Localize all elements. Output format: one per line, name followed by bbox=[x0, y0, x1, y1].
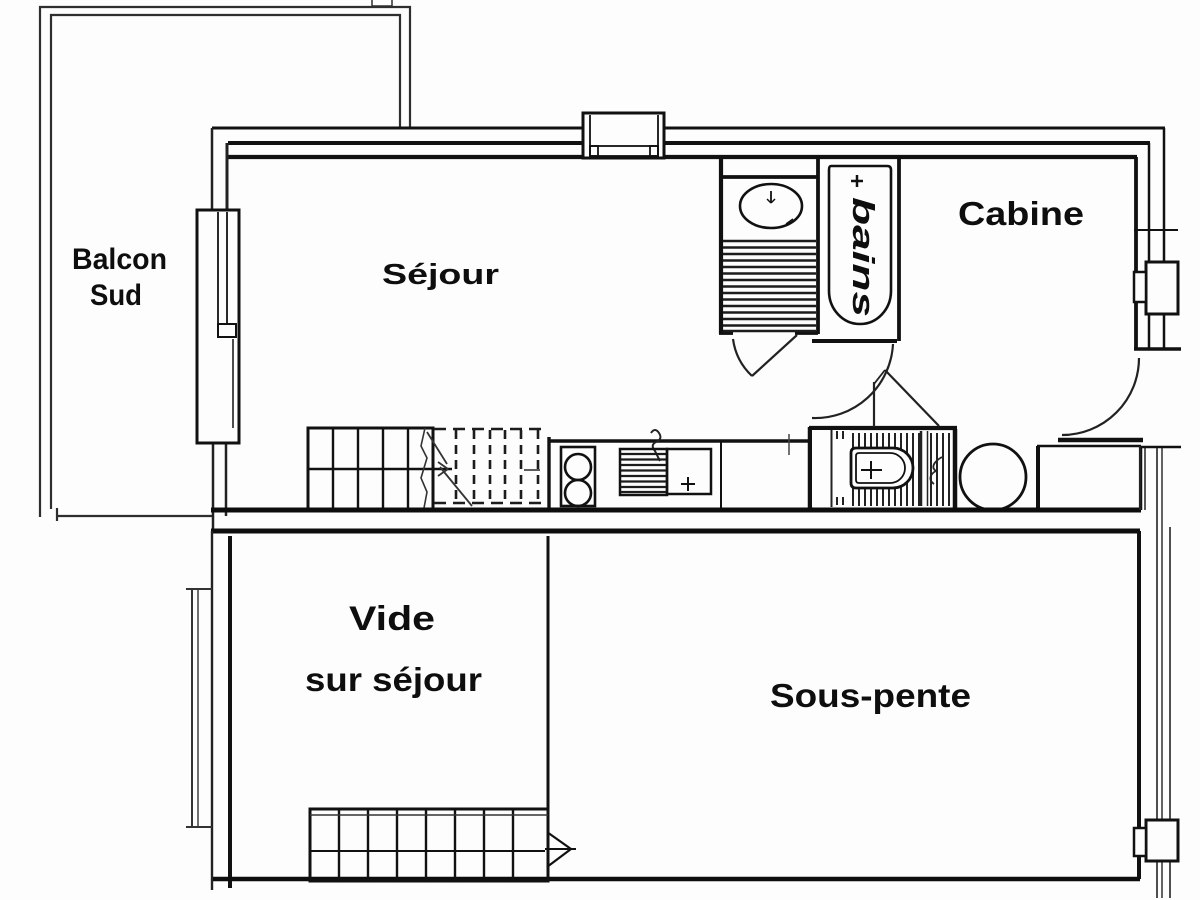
svg-text:sur séjour: sur séjour bbox=[305, 661, 482, 698]
svg-text:Séjour: Séjour bbox=[382, 259, 499, 291]
svg-text:Sous-pente: Sous-pente bbox=[770, 677, 971, 714]
svg-text:Balcon: Balcon bbox=[72, 243, 167, 276]
svg-text:bains: bains bbox=[846, 197, 881, 317]
svg-text:Cabine: Cabine bbox=[958, 195, 1084, 232]
svg-text:Sud: Sud bbox=[90, 279, 142, 312]
svg-text:Vide: Vide bbox=[349, 600, 435, 638]
